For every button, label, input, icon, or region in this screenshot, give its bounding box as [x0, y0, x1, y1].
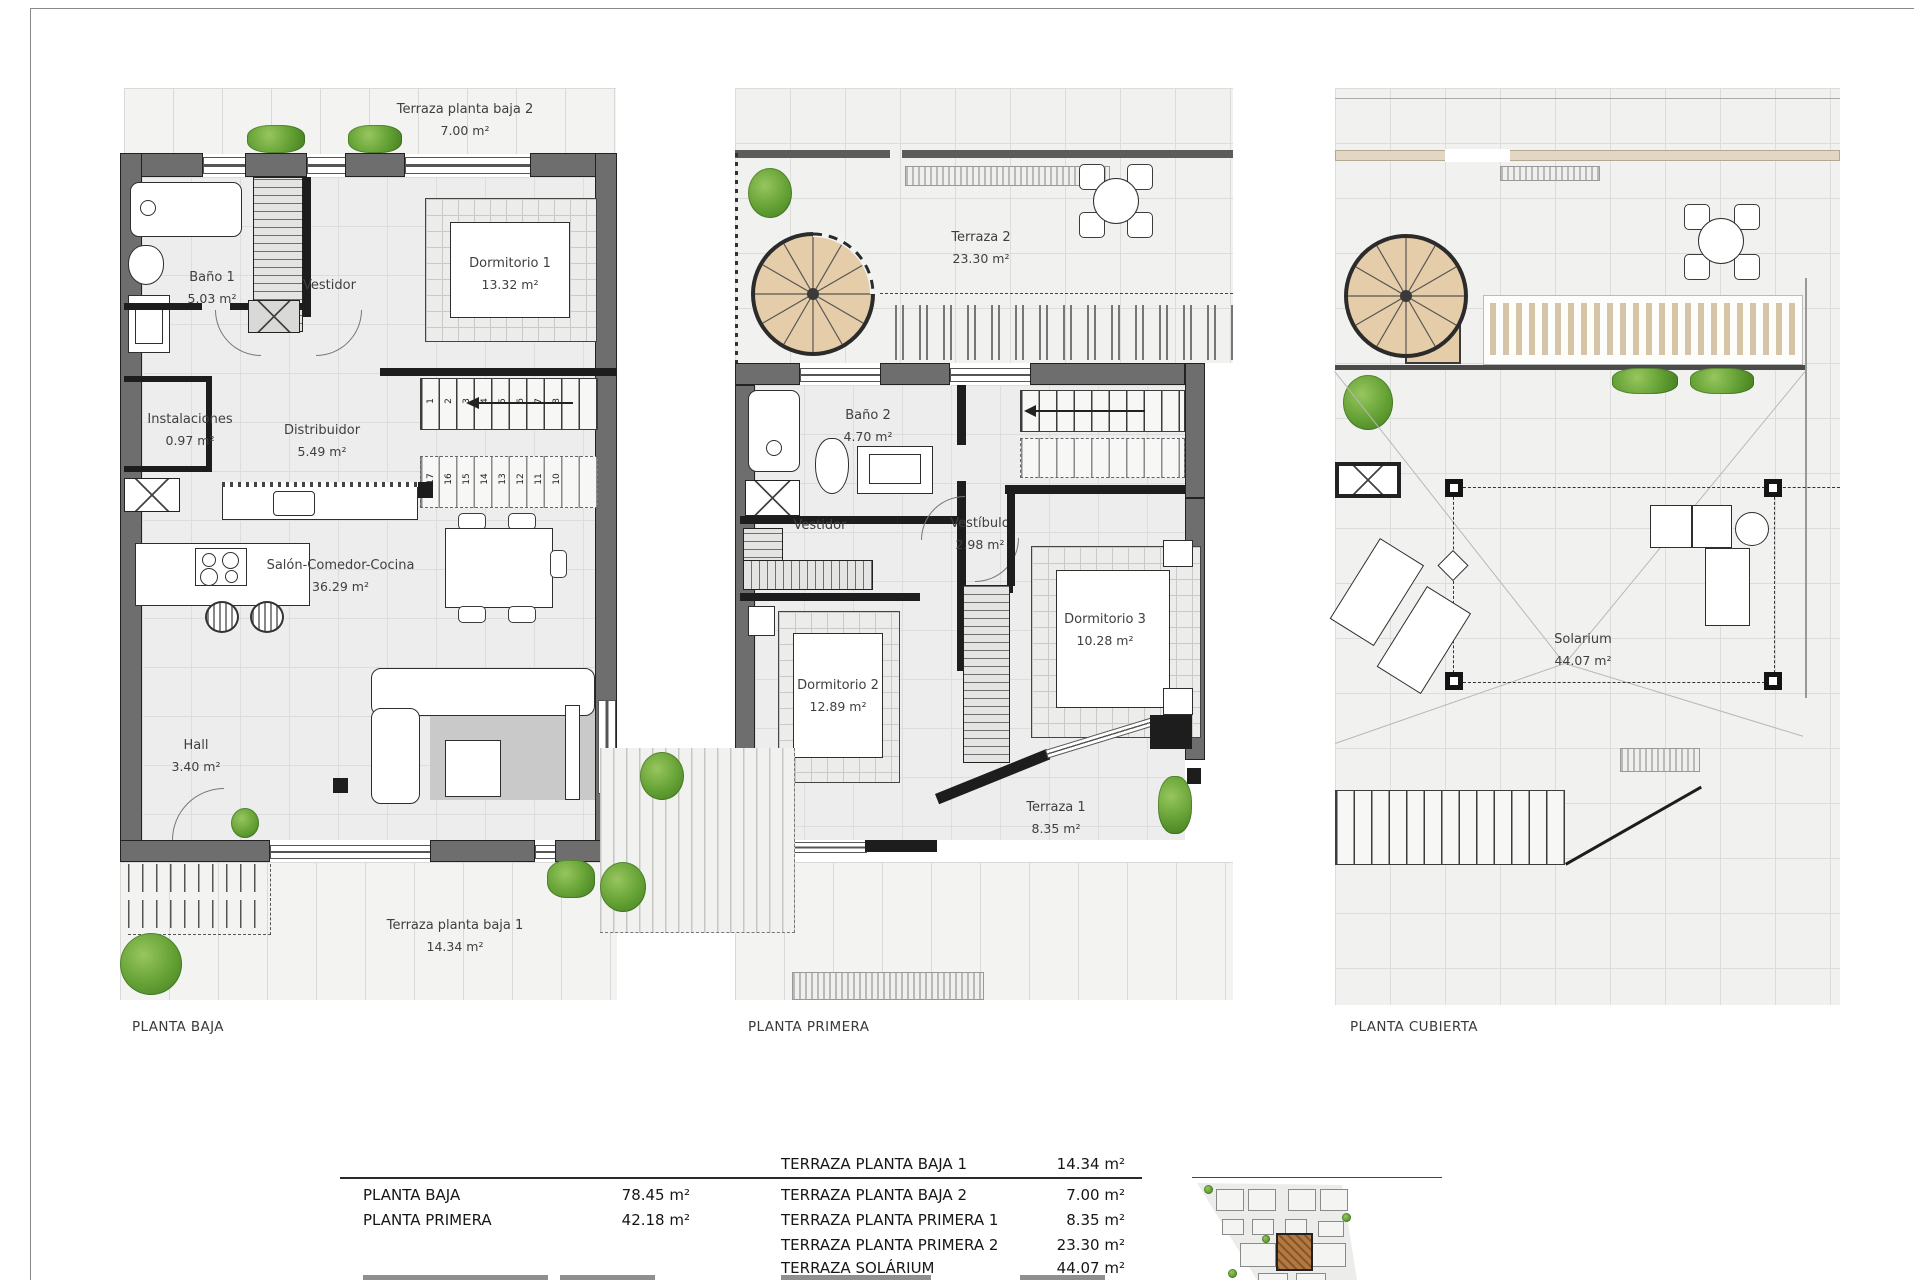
room-area: 10.28 m² — [1077, 633, 1134, 648]
room-area: 0.97 m² — [166, 433, 215, 448]
summary-floor-value: 78.45 m² — [555, 1186, 690, 1204]
room-label-vestidor: Vestidor — [282, 276, 377, 297]
toilet — [128, 245, 164, 285]
hob-burner — [222, 552, 239, 569]
spiral-stair — [1342, 232, 1470, 360]
pergola-dashed-edge — [128, 864, 271, 935]
site-thumb-topline — [1192, 1177, 1442, 1178]
wall-right — [1185, 363, 1205, 498]
summary-terrace-label: TERRAZA PLANTA PRIMERA 1 — [781, 1211, 998, 1229]
summary-terrace-value: 8.35 m² — [1000, 1211, 1125, 1229]
room-name: Baño 2 — [845, 408, 890, 423]
bathtub-faucet — [766, 440, 782, 456]
terrace-plant — [1158, 776, 1192, 834]
room-label-terraza2: Terraza 2 23.30 m² — [921, 228, 1041, 271]
room-label-dormitorio3: Dormitorio 3 10.28 m² — [1045, 610, 1165, 653]
stair-number: 11 — [534, 473, 544, 485]
pergola-dashed-ext — [1773, 487, 1840, 488]
counter-tile-edge — [222, 482, 418, 487]
summary-divider — [340, 1177, 1142, 1179]
room-name: Dormitorio 2 — [797, 678, 879, 693]
site-house — [1258, 1273, 1288, 1280]
room-area: 13.32 m² — [482, 277, 539, 292]
glazed-door — [800, 368, 882, 382]
wall-bottom — [865, 840, 937, 852]
summary-terrace-label: TERRAZA PLANTA PRIMERA 2 — [781, 1236, 998, 1254]
roof-edge-line — [735, 150, 890, 158]
partition-wall — [124, 466, 212, 472]
glazed-door — [950, 368, 1032, 382]
site-plan-thumbnail — [1192, 1177, 1442, 1280]
partition-wall — [1005, 485, 1185, 494]
stair-number: 6 — [516, 395, 526, 407]
terrace-plant — [547, 860, 595, 898]
roof-plant — [1343, 375, 1393, 430]
stair-direction-line — [478, 402, 573, 404]
site-house — [1310, 1243, 1346, 1267]
room-area: 14.34 m² — [427, 939, 484, 954]
wall-top — [1030, 363, 1185, 385]
stair-number: 12 — [516, 473, 526, 485]
site-tree — [1228, 1269, 1237, 1278]
pergola-post — [1764, 672, 1782, 690]
stair-number: 2 — [444, 395, 454, 407]
outdoor-sofa — [1650, 505, 1692, 548]
exterior-stair-band — [1335, 790, 1565, 865]
sheet-frame-left — [30, 8, 31, 1280]
window-sill — [405, 157, 532, 174]
site-house — [1216, 1189, 1244, 1211]
outdoor-sofa — [1705, 548, 1750, 626]
plan-title-planta-baja: PLANTA BAJA — [132, 1019, 224, 1035]
glazed-door — [270, 845, 432, 859]
washer-box — [745, 480, 800, 516]
plan-title-planta-cubierta: PLANTA CUBIERTA — [1350, 1019, 1478, 1035]
room-name: Terraza 1 — [1026, 800, 1085, 815]
counter-end-post — [418, 482, 433, 498]
room-area: 36.29 m² — [312, 579, 369, 594]
room-label-vestidor2: Vestidor — [775, 516, 865, 537]
room-area: 3.40 m² — [172, 759, 221, 774]
outdoor-counter — [1335, 462, 1401, 498]
hob-burner — [200, 568, 218, 586]
bathtub-faucet — [140, 200, 156, 216]
room-name: Terraza planta baja 2 — [397, 102, 534, 117]
site-house — [1252, 1219, 1274, 1235]
patio-table — [1698, 218, 1744, 264]
site-house — [1288, 1189, 1316, 1211]
site-highlighted-unit — [1276, 1233, 1313, 1271]
room-label-solarium: Solarium 44.07 m² — [1523, 630, 1643, 673]
stool — [205, 601, 239, 633]
tv-bench — [565, 705, 580, 800]
room-name: Distribuidor — [284, 423, 360, 438]
wall-bottom-mid — [430, 840, 535, 862]
room-name: Hall — [184, 738, 209, 753]
sofa-side-seat — [371, 708, 420, 804]
partition-wall — [740, 593, 920, 601]
indoor-plant — [231, 808, 259, 838]
step-grate — [1620, 748, 1700, 772]
floorplan-sheet: Terraza planta baja 2 7.00 m² Baño 1 — [0, 0, 1920, 1280]
deck-plant — [600, 862, 646, 912]
spiral-stair — [749, 230, 877, 358]
partition-wall — [1007, 494, 1015, 586]
room-name: Terraza planta baja 1 — [387, 918, 524, 933]
room-label-dormitorio1: Dormitorio 1 13.32 m² — [450, 254, 570, 297]
summary-floor-value: 42.18 m² — [555, 1211, 690, 1229]
site-house — [1318, 1221, 1344, 1237]
site-house — [1222, 1219, 1244, 1235]
kitchen-sink — [273, 491, 315, 516]
stair-number: 13 — [498, 473, 508, 485]
site-house — [1296, 1273, 1326, 1280]
structural-post — [333, 778, 348, 793]
outdoor-sofa — [1692, 505, 1732, 548]
room-label-salon: Salón-Comedor-Cocina 36.29 m² — [248, 556, 433, 599]
parapet-strip — [1335, 150, 1840, 161]
plan-planta-primera: Terraza 2 23.30 m² — [735, 88, 1233, 1010]
room-name: Baño 1 — [189, 270, 234, 285]
wall-planter — [1612, 368, 1678, 394]
site-house — [1320, 1189, 1348, 1211]
corner-wall — [1150, 715, 1192, 749]
stair-direction-line — [1035, 410, 1145, 412]
wall-stub — [1187, 768, 1201, 784]
plan-planta-cubierta: Solarium 44.07 m² — [1335, 88, 1840, 1010]
sink-basin — [135, 304, 163, 344]
room-area: 5.49 m² — [298, 444, 347, 459]
deck-grate — [792, 972, 984, 1000]
nightstand — [748, 606, 775, 636]
vanity-sink — [869, 454, 921, 484]
room-label-terraza-pb1: Terraza planta baja 1 14.34 m² — [365, 916, 545, 959]
planter-box — [345, 153, 405, 177]
stair-number: 7 — [534, 395, 544, 407]
room-name: Salón-Comedor-Cocina — [267, 558, 415, 573]
cutoff-row-fragment — [560, 1275, 655, 1280]
plan-planta-baja: Terraza planta baja 2 7.00 m² Baño 1 — [120, 88, 618, 1010]
room-name: Instalaciones — [147, 412, 232, 427]
railing-slats — [1490, 303, 1796, 355]
shaft-box — [124, 478, 180, 512]
roof-line — [1335, 98, 1840, 99]
stair-flight — [1020, 438, 1185, 478]
neighbor-edge-line — [1805, 278, 1807, 698]
window-sill — [307, 157, 347, 174]
partition-wall — [957, 385, 966, 445]
stool — [250, 601, 284, 633]
dining-chair — [508, 606, 536, 623]
room-name: Terraza 2 — [951, 230, 1010, 245]
cutoff-row-fragment — [363, 1275, 548, 1280]
summary-terrace-value: 14.34 m² — [1000, 1155, 1125, 1173]
pergola-post — [1764, 479, 1782, 497]
dotted-boundary — [735, 152, 738, 364]
room-label-terraza1: Terraza 1 8.35 m² — [997, 798, 1115, 841]
summary-floor-label: PLANTA PRIMERA — [363, 1211, 492, 1229]
coffee-table — [445, 740, 501, 797]
wardrobe — [743, 560, 873, 590]
sheet-frame-top — [30, 8, 1914, 9]
cutoff-row-fragment — [1020, 1275, 1105, 1280]
bathtub — [748, 390, 800, 472]
terrace-plant — [748, 168, 792, 218]
wall-top — [735, 363, 800, 385]
nightstand — [1163, 688, 1193, 715]
room-area: 8.35 m² — [1032, 821, 1081, 836]
stair-number: 15 — [462, 473, 472, 485]
cutoff-row-fragment — [781, 1275, 931, 1280]
railing-slats — [895, 305, 1233, 360]
room-name: Dormitorio 3 — [1064, 612, 1146, 627]
railing-dashed-line — [880, 293, 1233, 294]
summary-terrace-label: TERRAZA PLANTA BAJA 2 — [781, 1186, 967, 1204]
room-area: 7.00 m² — [441, 123, 490, 138]
partition-wall — [124, 303, 202, 310]
wall-planter — [1690, 368, 1754, 394]
room-label-dormitorio2: Dormitorio 2 12.89 m² — [783, 676, 893, 719]
room-area: 23.30 m² — [953, 251, 1010, 266]
summary-terrace-value: 23.30 m² — [1000, 1236, 1125, 1254]
room-name: Vestidor — [303, 278, 356, 293]
room-label-instalaciones: Instalaciones 0.97 m² — [130, 410, 250, 453]
site-house — [1248, 1189, 1276, 1211]
outdoor-round-table — [1735, 512, 1769, 546]
summary-terrace-value: 7.00 m² — [1000, 1186, 1125, 1204]
terrace-plant — [120, 933, 182, 995]
room-label-distribuidor: Distribuidor 5.49 m² — [262, 421, 382, 464]
room-area: 44.07 m² — [1555, 653, 1612, 668]
room-area: 4.70 m² — [844, 429, 893, 444]
wardrobe — [963, 585, 1010, 763]
stair-number: 10 — [552, 473, 562, 485]
stair-number: 1 — [426, 395, 436, 407]
glazed-door — [535, 845, 557, 859]
room-name: Vestidor — [794, 518, 847, 533]
kitchen-counter — [222, 486, 418, 520]
stair-number: 16 — [444, 473, 454, 485]
partition-wall — [124, 376, 212, 382]
parapet-gap — [1445, 149, 1510, 162]
planter-box — [245, 153, 307, 177]
room-name: Solarium — [1554, 632, 1612, 647]
window-sill — [203, 157, 247, 174]
glazed-door — [790, 842, 867, 853]
site-tree — [1342, 1213, 1351, 1222]
stair-number: 5 — [498, 395, 508, 407]
stair-direction-arrow — [1024, 405, 1036, 417]
room-label-bano2: Baño 2 4.70 m² — [818, 406, 918, 449]
pergola-post — [1445, 672, 1463, 690]
partition-wall — [380, 368, 617, 376]
pergola-post — [1445, 479, 1463, 497]
room-area: 12.89 m² — [810, 699, 867, 714]
hob-burner — [225, 570, 238, 583]
site-tree — [1204, 1185, 1213, 1194]
room-name: Dormitorio 1 — [469, 256, 551, 271]
dining-chair — [458, 606, 486, 623]
pergola-slats — [1500, 166, 1600, 181]
roof-edge-line — [902, 150, 1233, 158]
plan-title-planta-primera: PLANTA PRIMERA — [748, 1019, 869, 1035]
stair-number: 4 — [480, 395, 490, 407]
wall-top — [880, 363, 950, 385]
stair-number: 8 — [552, 395, 562, 407]
site-tree — [1262, 1235, 1270, 1243]
wall-bottom-left — [120, 840, 270, 862]
deck-plant — [640, 752, 684, 800]
summary-terrace-label: TERRAZA PLANTA BAJA 1 — [781, 1155, 967, 1173]
hob-burner — [202, 553, 216, 567]
dining-chair — [550, 550, 567, 578]
nightstand — [1163, 540, 1193, 567]
patio-chair — [1734, 254, 1760, 280]
room-label-hall: Hall 3.40 m² — [146, 736, 246, 779]
stair-direction-arrow — [466, 397, 479, 409]
planter-plant — [348, 125, 402, 153]
planter-plant — [247, 125, 305, 153]
site-house — [1240, 1243, 1276, 1267]
summary-floor-label: PLANTA BAJA — [363, 1186, 460, 1204]
patio-table — [1093, 178, 1139, 224]
hob — [195, 548, 247, 586]
stair-number: 14 — [480, 473, 490, 485]
dining-table — [445, 528, 553, 608]
